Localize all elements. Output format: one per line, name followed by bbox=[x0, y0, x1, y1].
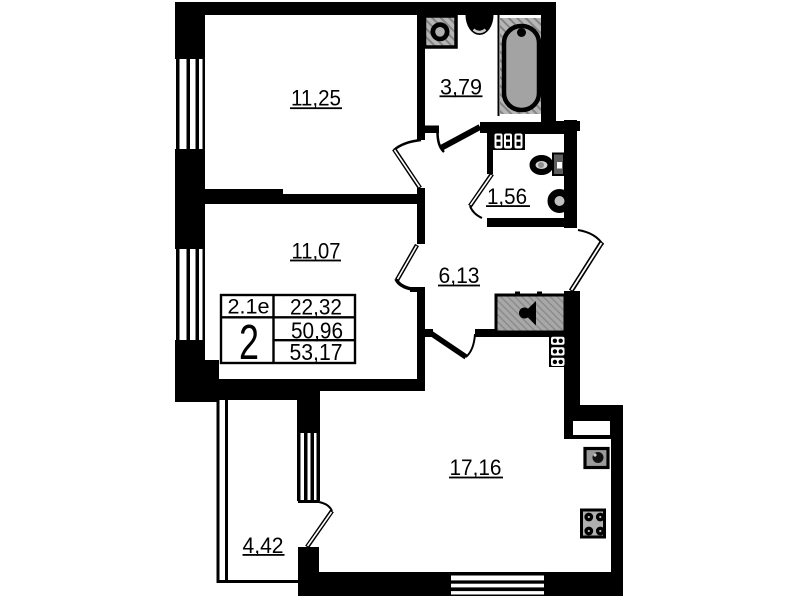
svg-text:22,32: 22,32 bbox=[290, 295, 342, 320]
svg-text:53,17: 53,17 bbox=[290, 339, 343, 365]
svg-text:11,25: 11,25 bbox=[291, 86, 341, 111]
svg-text:17,16: 17,16 bbox=[450, 455, 502, 480]
svg-text:2: 2 bbox=[239, 316, 259, 370]
svg-text:6,13: 6,13 bbox=[439, 263, 480, 288]
